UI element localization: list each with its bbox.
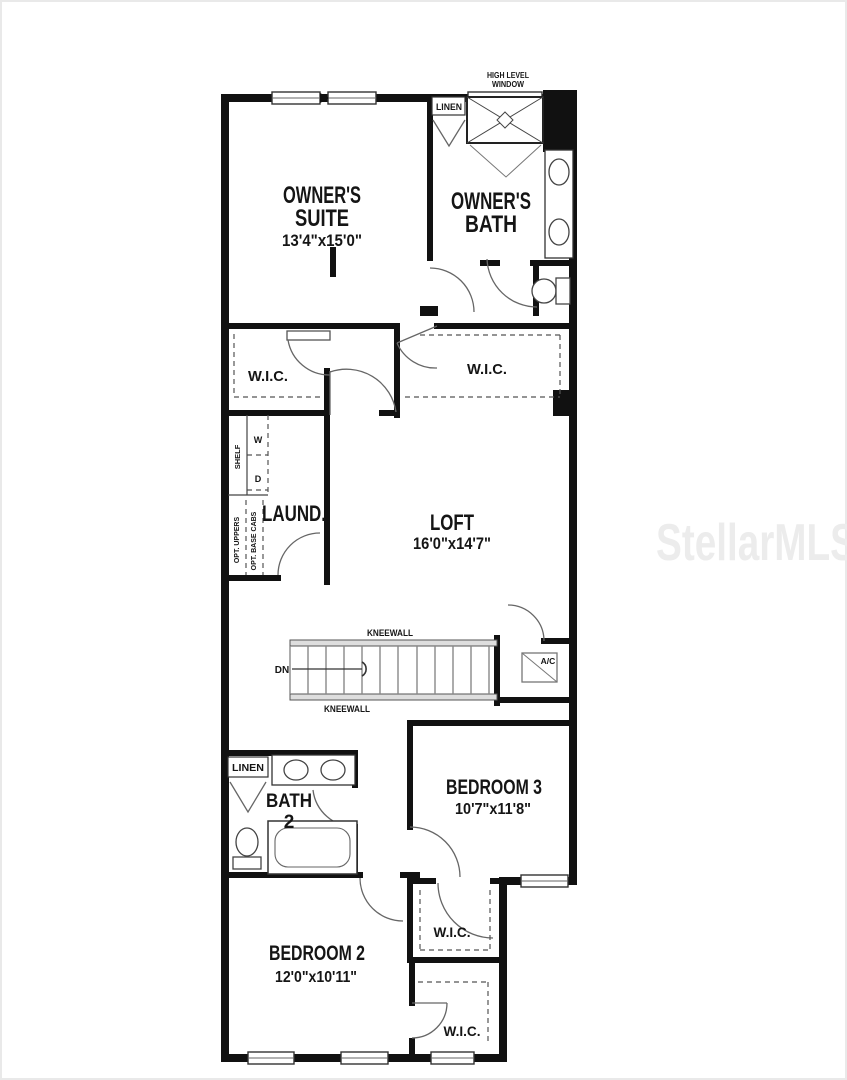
linen-top-label: LINEN <box>436 102 462 112</box>
wic-mid-label: W.I.C. <box>434 924 471 940</box>
bath2-sink-2 <box>321 760 345 780</box>
opt-base-cabs-label: OPT. BASE CABS <box>251 511 258 570</box>
high-level-window-label-2: WINDOW <box>492 79 525 89</box>
bath2-tub-inner <box>275 828 350 867</box>
wall-block-top-right <box>543 90 577 152</box>
wic-left-label: W.I.C. <box>248 368 288 385</box>
stairs-down-label: DN <box>275 665 289 676</box>
ac-label: A/C <box>541 656 556 666</box>
shelf-label: SHELF <box>233 444 242 469</box>
wc-toilet-tank <box>556 278 570 304</box>
floor-plan-photo: StellarMLS <box>0 0 847 1080</box>
wc-toilet-bowl <box>532 279 556 303</box>
bath2-label-1: BATH <box>266 791 312 812</box>
loft-label: LOFT <box>430 510 474 535</box>
stairs-kneewall-top-rail <box>290 640 497 646</box>
linen-bath2-label: LINEN <box>232 763 264 774</box>
wic-right-label: W.I.C. <box>467 361 507 378</box>
kneewall-bottom-label: KNEEWALL <box>324 704 370 714</box>
bath2-toilet-bowl <box>236 828 258 856</box>
wic-bottom-label: W.I.C. <box>444 1023 481 1039</box>
bedroom3-label: BEDROOM 3 <box>446 776 542 799</box>
opt-uppers-label: OPT. UPPERS <box>234 517 241 564</box>
owners-bath-label-2: BATH <box>465 211 517 238</box>
door-stub <box>420 306 438 316</box>
bedroom3-dims: 10'7"x11'8" <box>455 801 531 818</box>
bath2-sink-1 <box>284 760 308 780</box>
door-leaf-wic-left <box>287 331 330 340</box>
watermark-text: StellarMLS <box>656 514 847 572</box>
kneewall-top-label: KNEEWALL <box>367 628 413 638</box>
bedroom2-label: BEDROOM 2 <box>269 942 365 965</box>
loft-dims: 16'0"x14'7" <box>413 534 491 553</box>
owners-sink-2 <box>549 219 569 245</box>
bath2-label-2: 2 <box>284 812 295 833</box>
bath2-toilet-tank <box>233 857 261 869</box>
owners-suite-dims: 13'4"x15'0" <box>282 231 362 250</box>
owners-suite-label-2: SUITE <box>295 205 349 232</box>
floor-plan-drawing: StellarMLS <box>0 0 847 1080</box>
stairs-kneewall-bottom-rail <box>290 694 497 700</box>
dryer-label: D <box>255 474 262 484</box>
wall-block-wic-corner <box>553 390 577 416</box>
owners-sink-1 <box>549 159 569 185</box>
bedroom2-dims: 12'0"x10'11" <box>275 969 357 986</box>
washer-label: W <box>254 435 263 445</box>
laundry-label: LAUND. <box>262 501 326 526</box>
